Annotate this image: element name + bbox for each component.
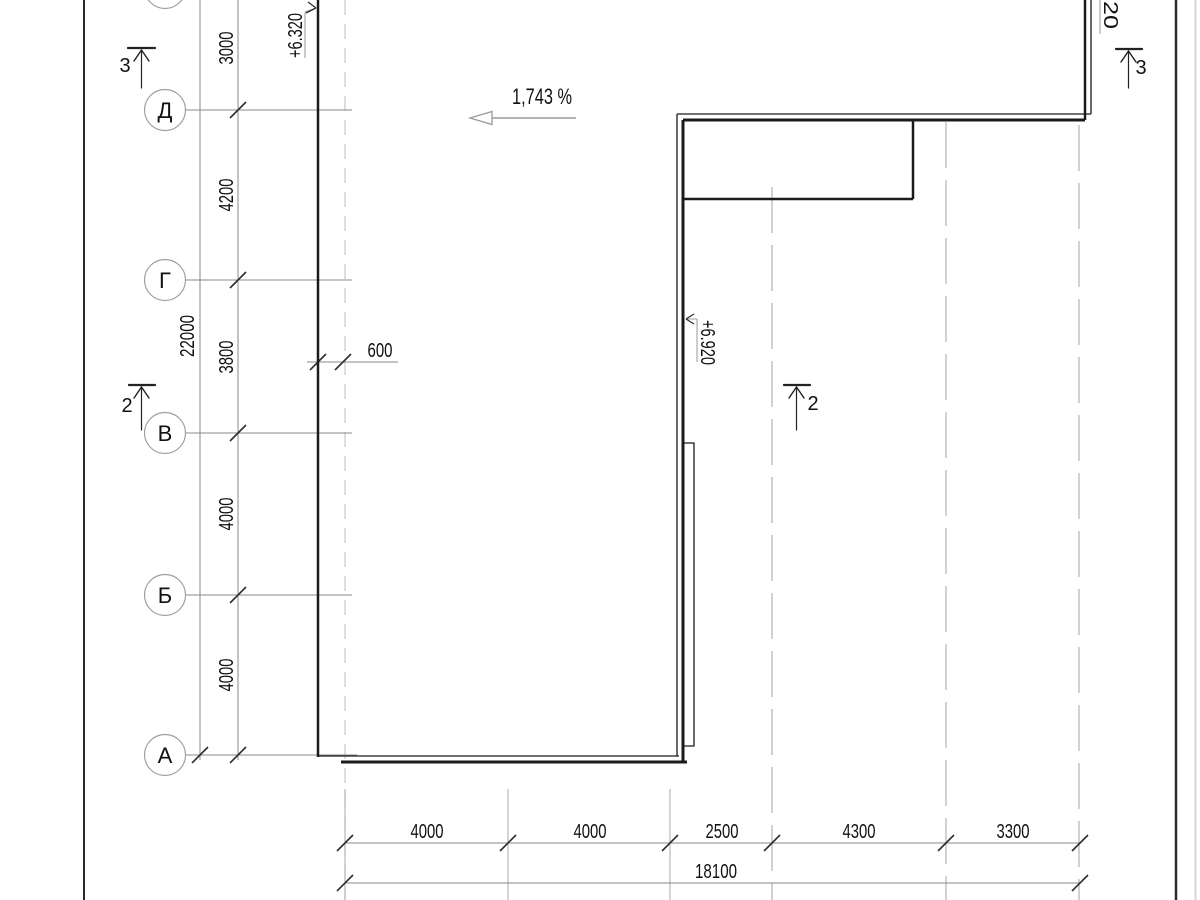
elevation-left-label: +6.320 — [285, 13, 307, 58]
elevation-annotations: +6.320 +6.920 20 — [285, 0, 1121, 365]
left-dimension-chain: 3000 4200 3800 4000 4000 22000 — [177, 0, 246, 763]
dim-bottom-4000-a: 4000 — [411, 821, 444, 843]
dim-bottom-4000-b: 4000 — [574, 821, 607, 843]
section-label-2-left: 2 — [121, 395, 132, 417]
dim-left-4000-b: 4000 — [216, 659, 238, 692]
section-label-3-left: 3 — [119, 55, 130, 77]
dim-left-3000: 3000 — [216, 32, 238, 65]
dim-bottom-2500: 2500 — [706, 821, 739, 843]
drawing-sheet: 3000 4200 3800 4000 4000 22000 600 — [0, 0, 1200, 900]
row-axis-bubbles: Д Г В Б А — [145, 0, 186, 776]
axis-label-g: Г — [159, 268, 171, 293]
building-outline — [318, 0, 1091, 762]
axis-bubble-top-partial — [145, 0, 186, 9]
dim-left-4200: 4200 — [216, 179, 238, 212]
axis-label-v: В — [158, 421, 173, 446]
dim-left-3800: 3800 — [216, 341, 238, 374]
elevation-mid-arrow — [686, 314, 694, 319]
axis-label-b: Б — [158, 583, 172, 608]
elevation-left-arrow — [308, 2, 316, 8]
page-frame — [84, 0, 1196, 900]
elevation-mid-group: +6.920 — [686, 314, 718, 365]
section-label-3-right: 3 — [1135, 57, 1146, 79]
elevation-top-right-group: 20 — [1099, 0, 1121, 34]
wall-ledge-strip — [683, 443, 694, 746]
dim-left-4000-a: 4000 — [216, 498, 238, 531]
dim-bottom-4300: 4300 — [843, 821, 876, 843]
elevation-mid-label: +6.920 — [696, 320, 718, 365]
elevation-top-right-label: 20 — [1099, 1, 1121, 29]
vertical-axis-lines — [345, 0, 1079, 900]
slope-arrow-head — [470, 112, 492, 125]
dim-600-label: 600 — [368, 340, 393, 362]
section-marker-2-right: 2 — [784, 385, 819, 430]
dim-bottom-total-18100: 18100 — [695, 861, 737, 883]
offset-dimension-600: 600 — [307, 340, 398, 370]
roof-plan-drawing: 3000 4200 3800 4000 4000 22000 600 — [0, 0, 1200, 900]
slope-label: 1,743 % — [512, 84, 572, 109]
axis-label-a: А — [158, 743, 173, 768]
section-marker-3-left: 3 — [119, 48, 155, 88]
axis-label-d: Д — [158, 98, 173, 123]
dim-bottom-3300: 3300 — [997, 821, 1030, 843]
bottom-dimension-chain: 4000 4000 2500 4300 3300 18100 — [337, 789, 1088, 900]
slope-annotation: 1,743 % — [470, 84, 576, 125]
section-markers: 3 2 2 3 — [119, 48, 1146, 430]
elevation-left-group: +6.320 — [285, 2, 316, 58]
dim-left-total-22000: 22000 — [177, 315, 199, 357]
section-marker-3-right: 3 — [1116, 49, 1147, 88]
row-axis-lines — [186, 110, 357, 755]
section-label-2-right: 2 — [807, 393, 818, 415]
